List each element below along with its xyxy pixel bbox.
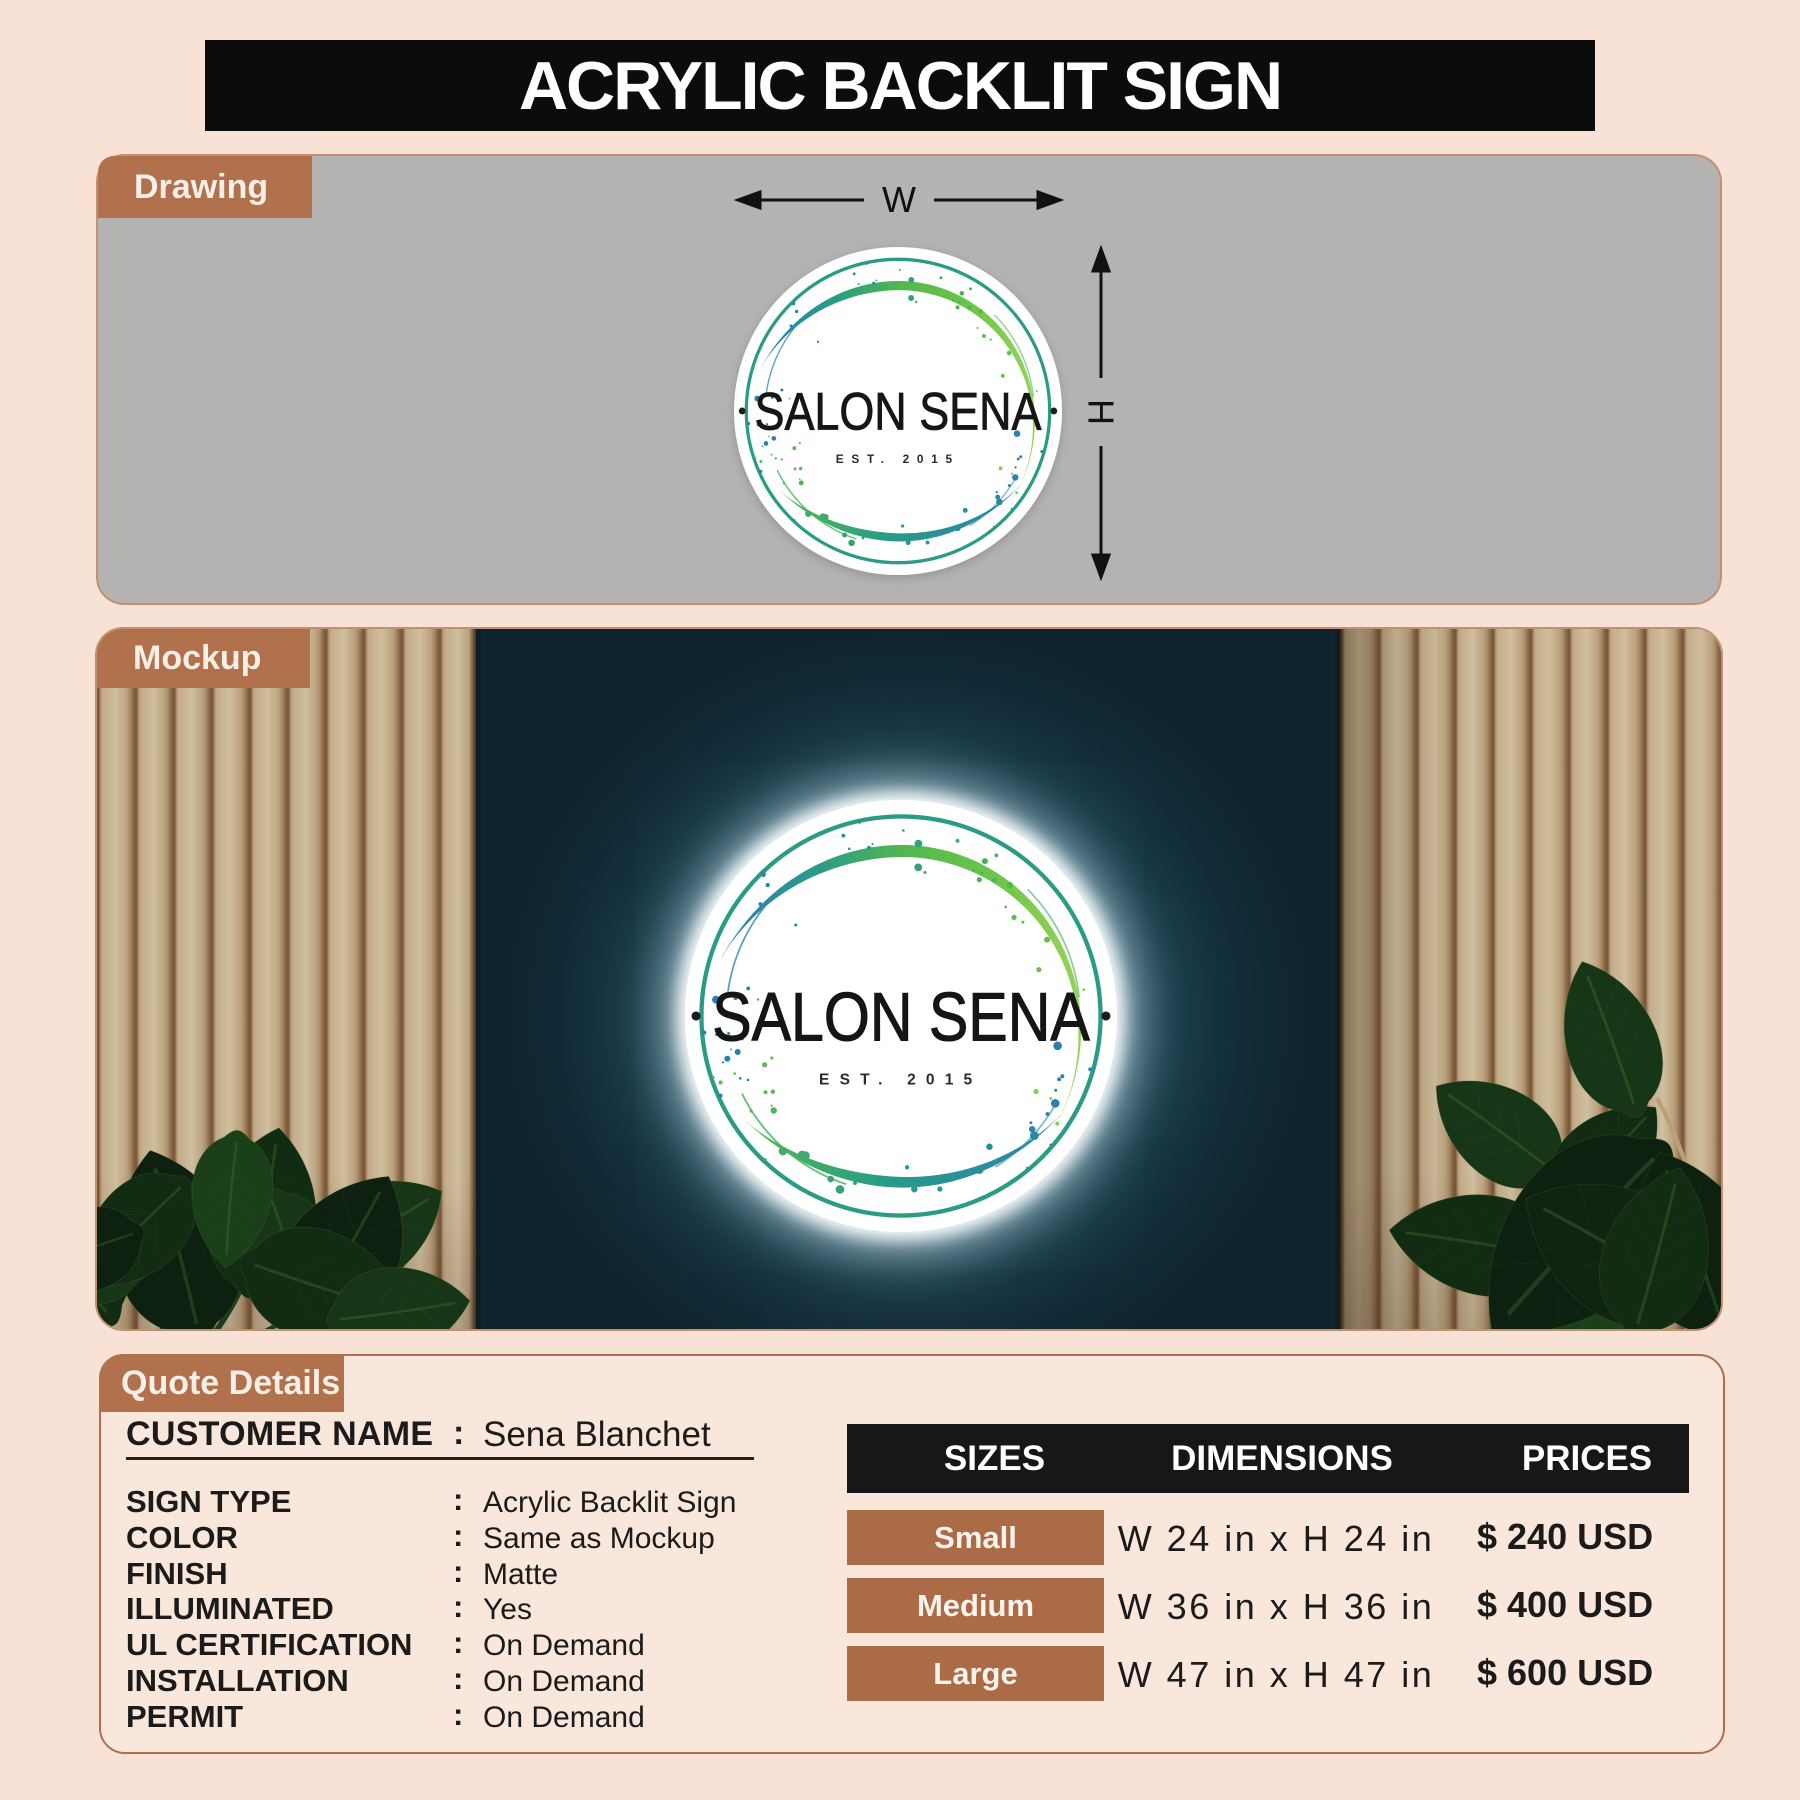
svg-text:W: W — [882, 179, 916, 220]
svg-text:H: H — [1081, 399, 1122, 425]
